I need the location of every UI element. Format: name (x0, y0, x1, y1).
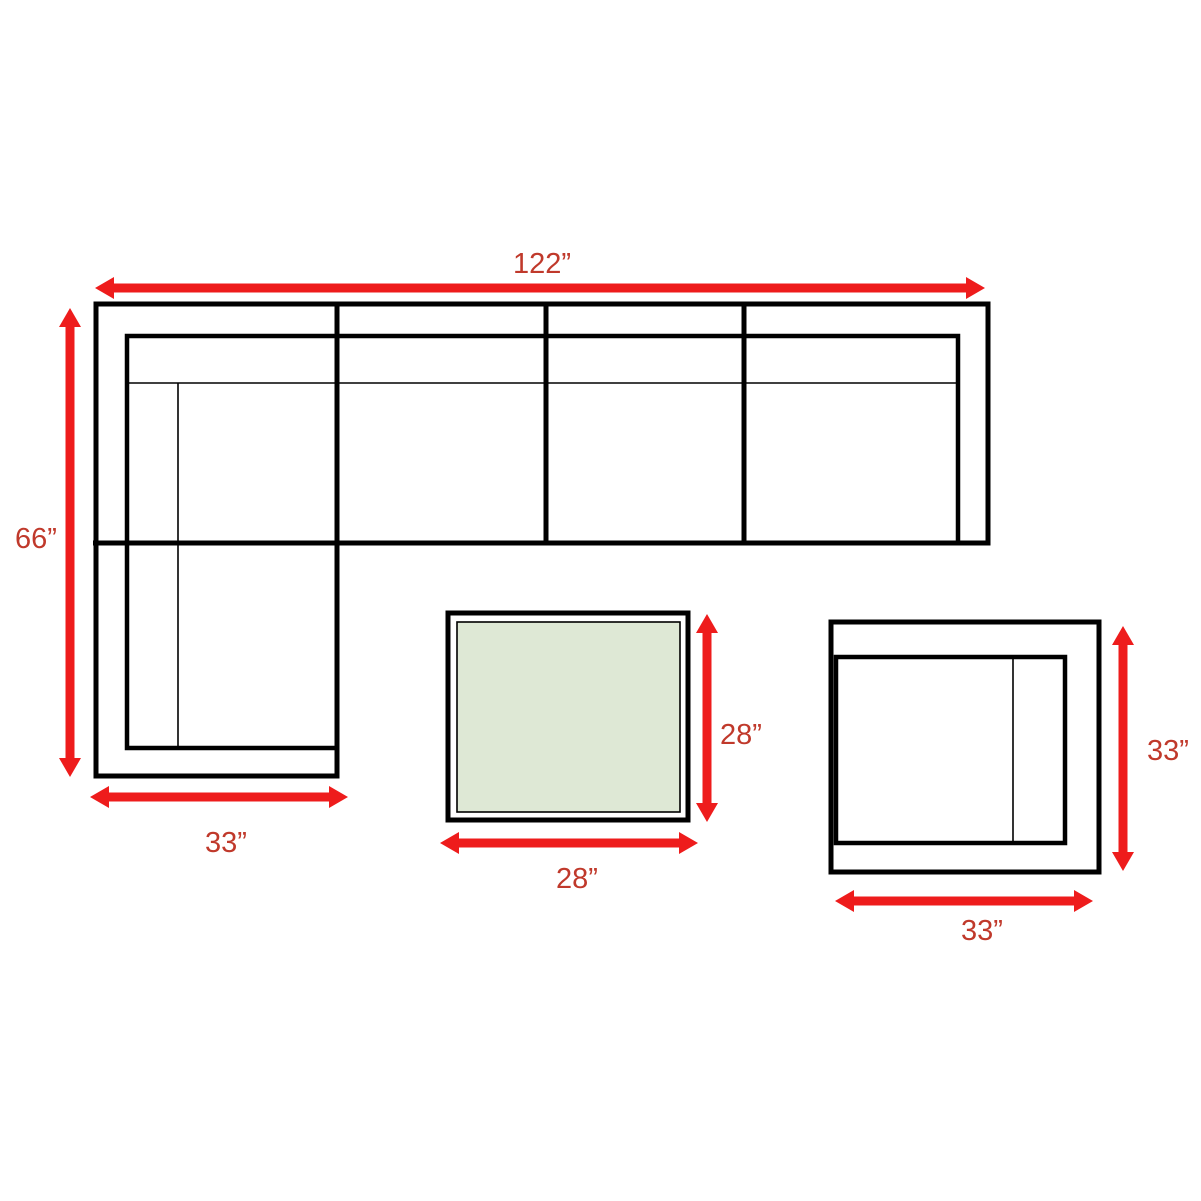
coffee-table-depth-label: 28” (720, 719, 762, 751)
furniture-dimension-diagram: 122” 66” 33” 28” 28” 33” 33” (0, 0, 1201, 1201)
sofa-width-label: 122” (513, 248, 571, 280)
side-table-depth-label: 33” (1147, 735, 1189, 767)
chaise-width-label: 33” (205, 827, 247, 859)
side-table-inner (836, 657, 1065, 843)
sofa-width-arrow (95, 277, 985, 299)
side-table-depth-arrow (1112, 626, 1134, 871)
coffee-table (448, 613, 688, 820)
sofa-depth-arrow (59, 308, 81, 777)
diagram-svg: 122” 66” 33” 28” 28” 33” 33” (0, 0, 1201, 1201)
coffee-table-width-arrow (440, 832, 698, 854)
side-table (831, 622, 1099, 872)
side-table-width-arrow (835, 890, 1093, 912)
coffee-table-depth-arrow (696, 614, 718, 822)
coffee-table-width-label: 28” (556, 863, 598, 895)
coffee-table-glass-top (457, 622, 680, 812)
side-table-width-label: 33” (961, 915, 1003, 947)
sofa-depth-label: 66” (15, 523, 57, 555)
chaise-width-arrow (90, 786, 348, 808)
